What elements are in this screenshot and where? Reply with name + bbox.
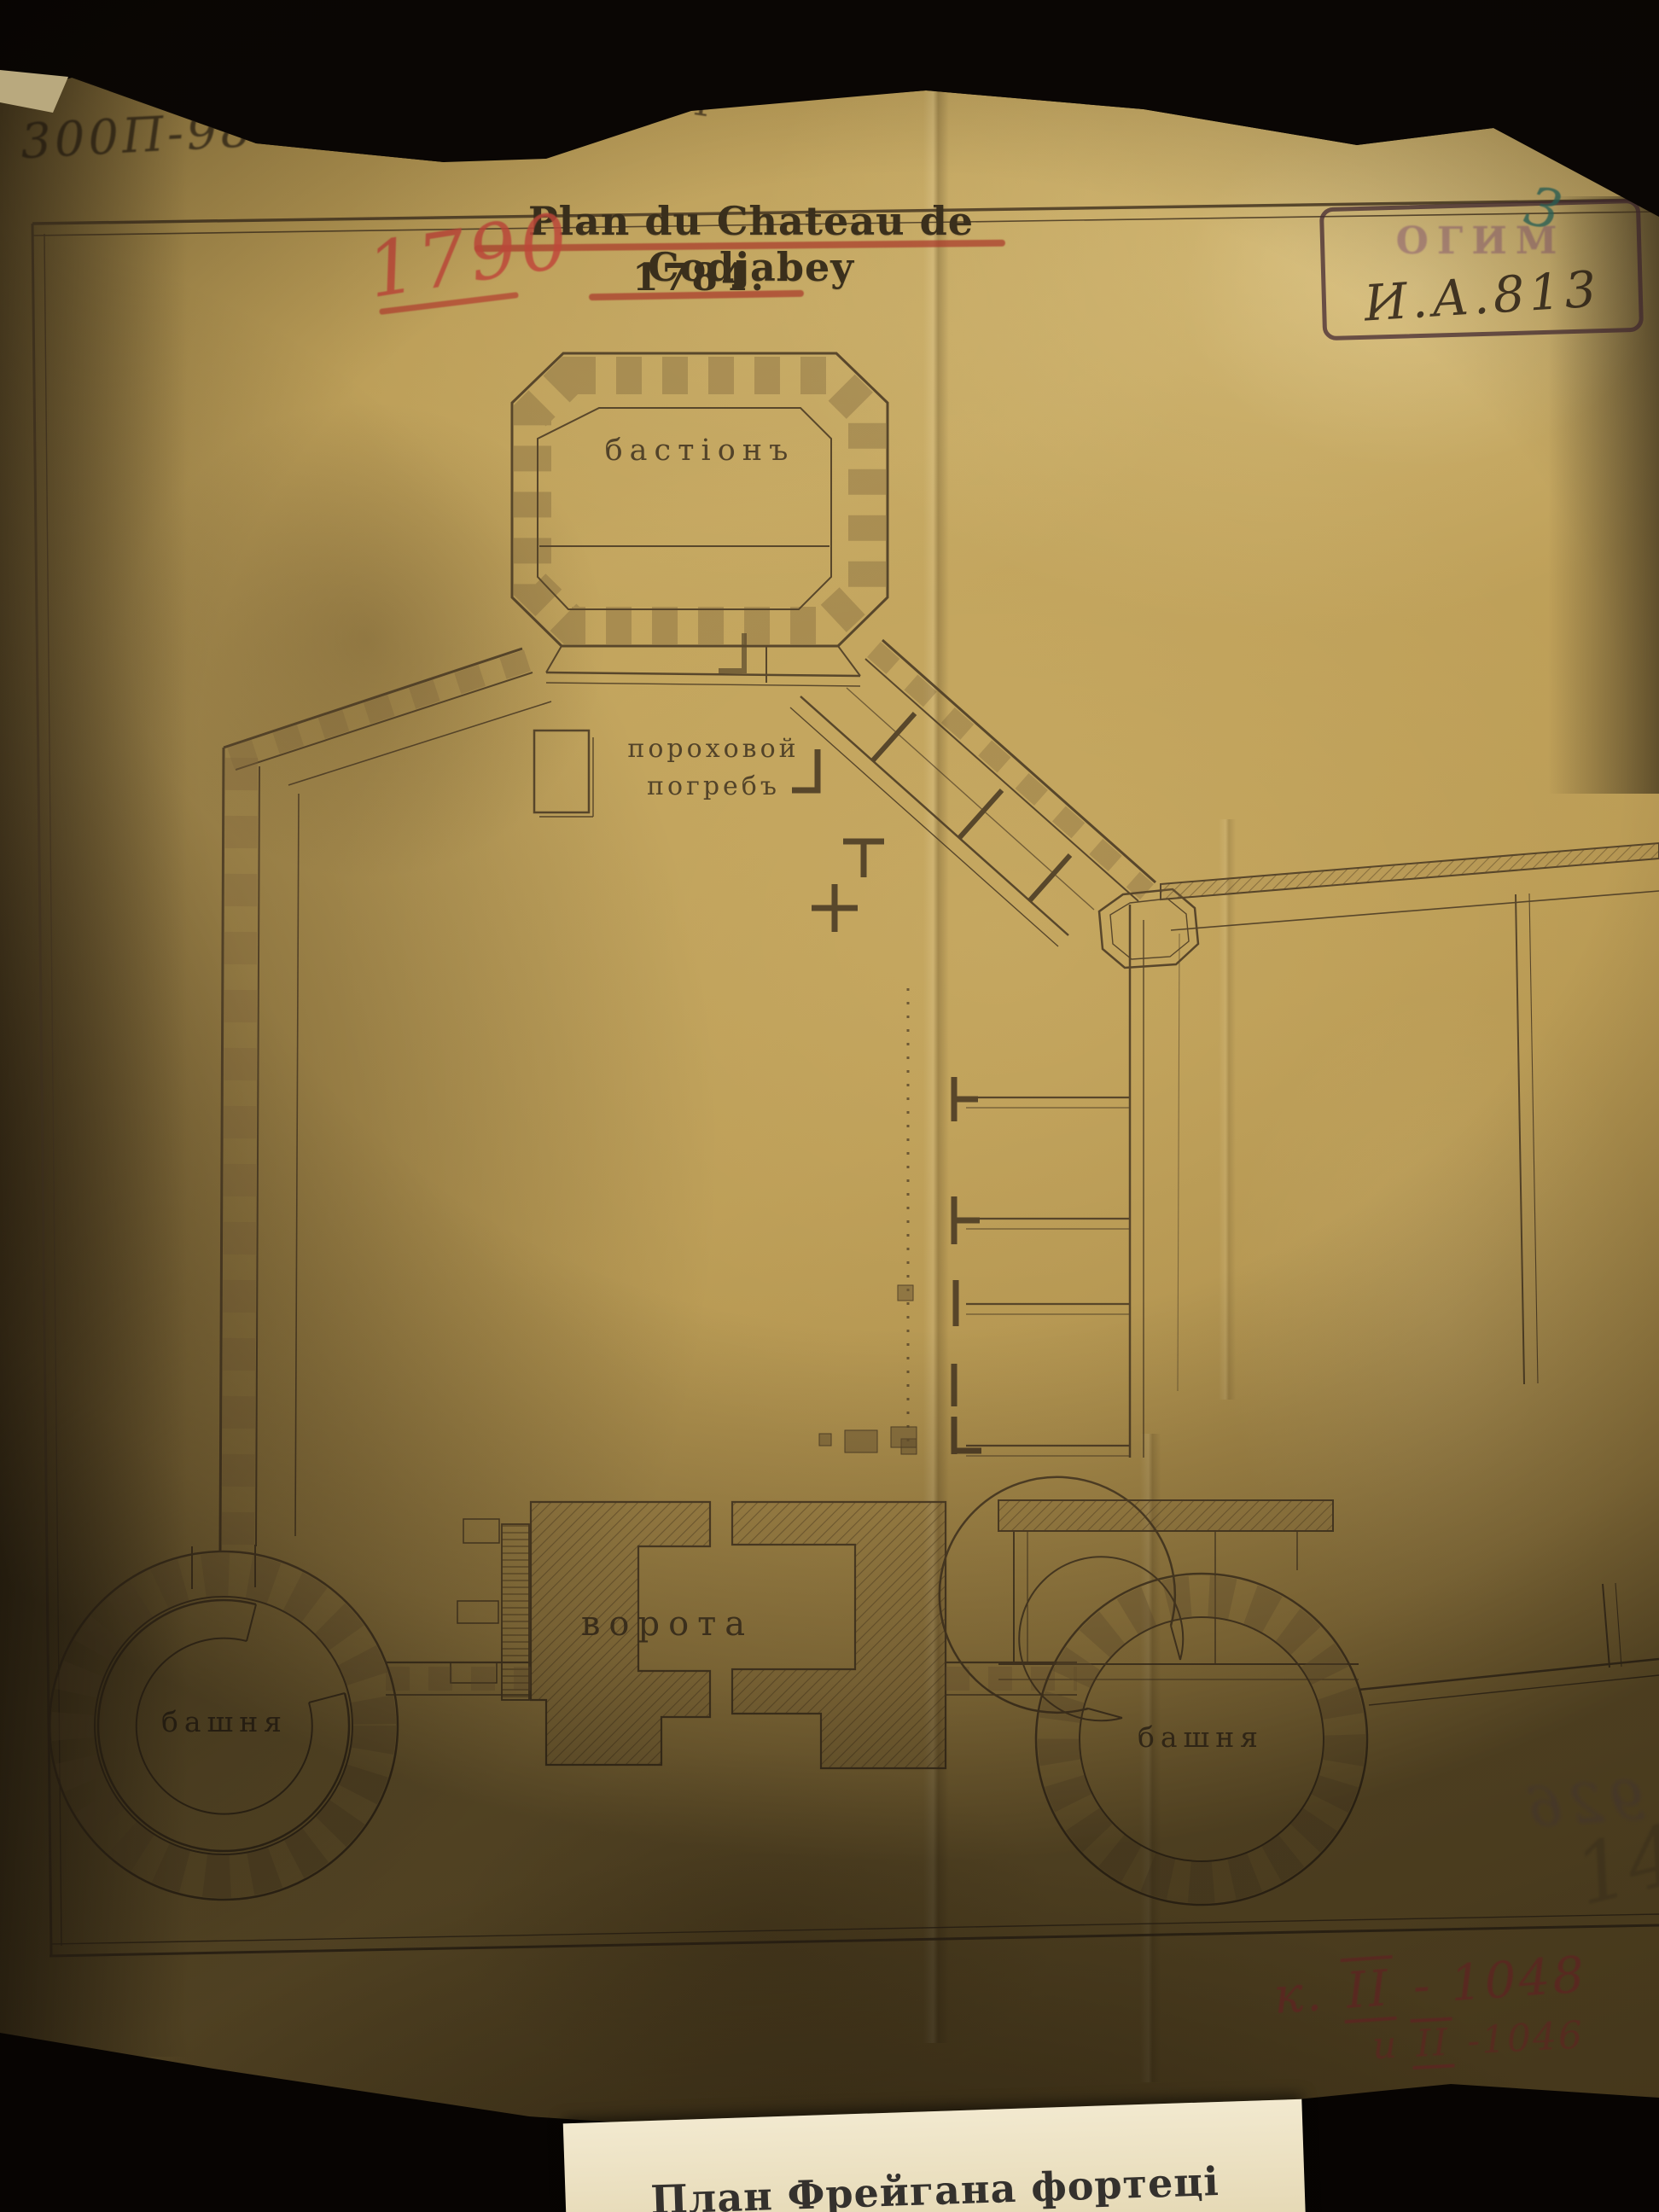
- label-gate: ворота: [539, 1604, 795, 1644]
- note-prefix: и: [1371, 2023, 1400, 2069]
- gate-structure: [386, 1427, 1077, 1768]
- archival-photo: Plan du Chateau de Codjabey 1784. 1790 3…: [0, 0, 1659, 2212]
- powder-magazine-drawing: [534, 731, 593, 817]
- octagon-turret: [1099, 889, 1198, 968]
- label-tower-left: башня: [109, 1705, 340, 1738]
- stamp-museum-abbr: ОГИМ: [1324, 219, 1637, 264]
- caption-text: План Фрейгана фортеці Гаджибей 1789 р.: [565, 2156, 1307, 2212]
- label-powder-magazine-line1: пороховой: [602, 734, 824, 764]
- museum-stamp: ОГИМ И.А.813: [1319, 199, 1644, 341]
- label-tower-right: башня: [1086, 1720, 1316, 1754]
- west-curtain-wall: [220, 649, 551, 1551]
- note-number: -1046: [1466, 2014, 1585, 2064]
- note-prefix: к.: [1272, 1964, 1326, 2025]
- tower-right-drawing: [940, 1477, 1367, 1905]
- note-roman-numeral: II: [1340, 1955, 1397, 2023]
- east-courtyard: [1130, 843, 1659, 1705]
- vertical-barracks: [898, 988, 1130, 1456]
- east-curtain-wall: [847, 640, 1155, 910]
- label-bastion: бастіонъ: [563, 434, 836, 468]
- bastion-outline: [512, 353, 888, 686]
- note-number: - 1048: [1411, 1945, 1588, 2015]
- label-powder-magazine-line2: погребъ: [602, 771, 824, 801]
- note-roman-numeral: II: [1411, 2017, 1455, 2069]
- stamp-inventory-number: И.А.813: [1324, 258, 1640, 335]
